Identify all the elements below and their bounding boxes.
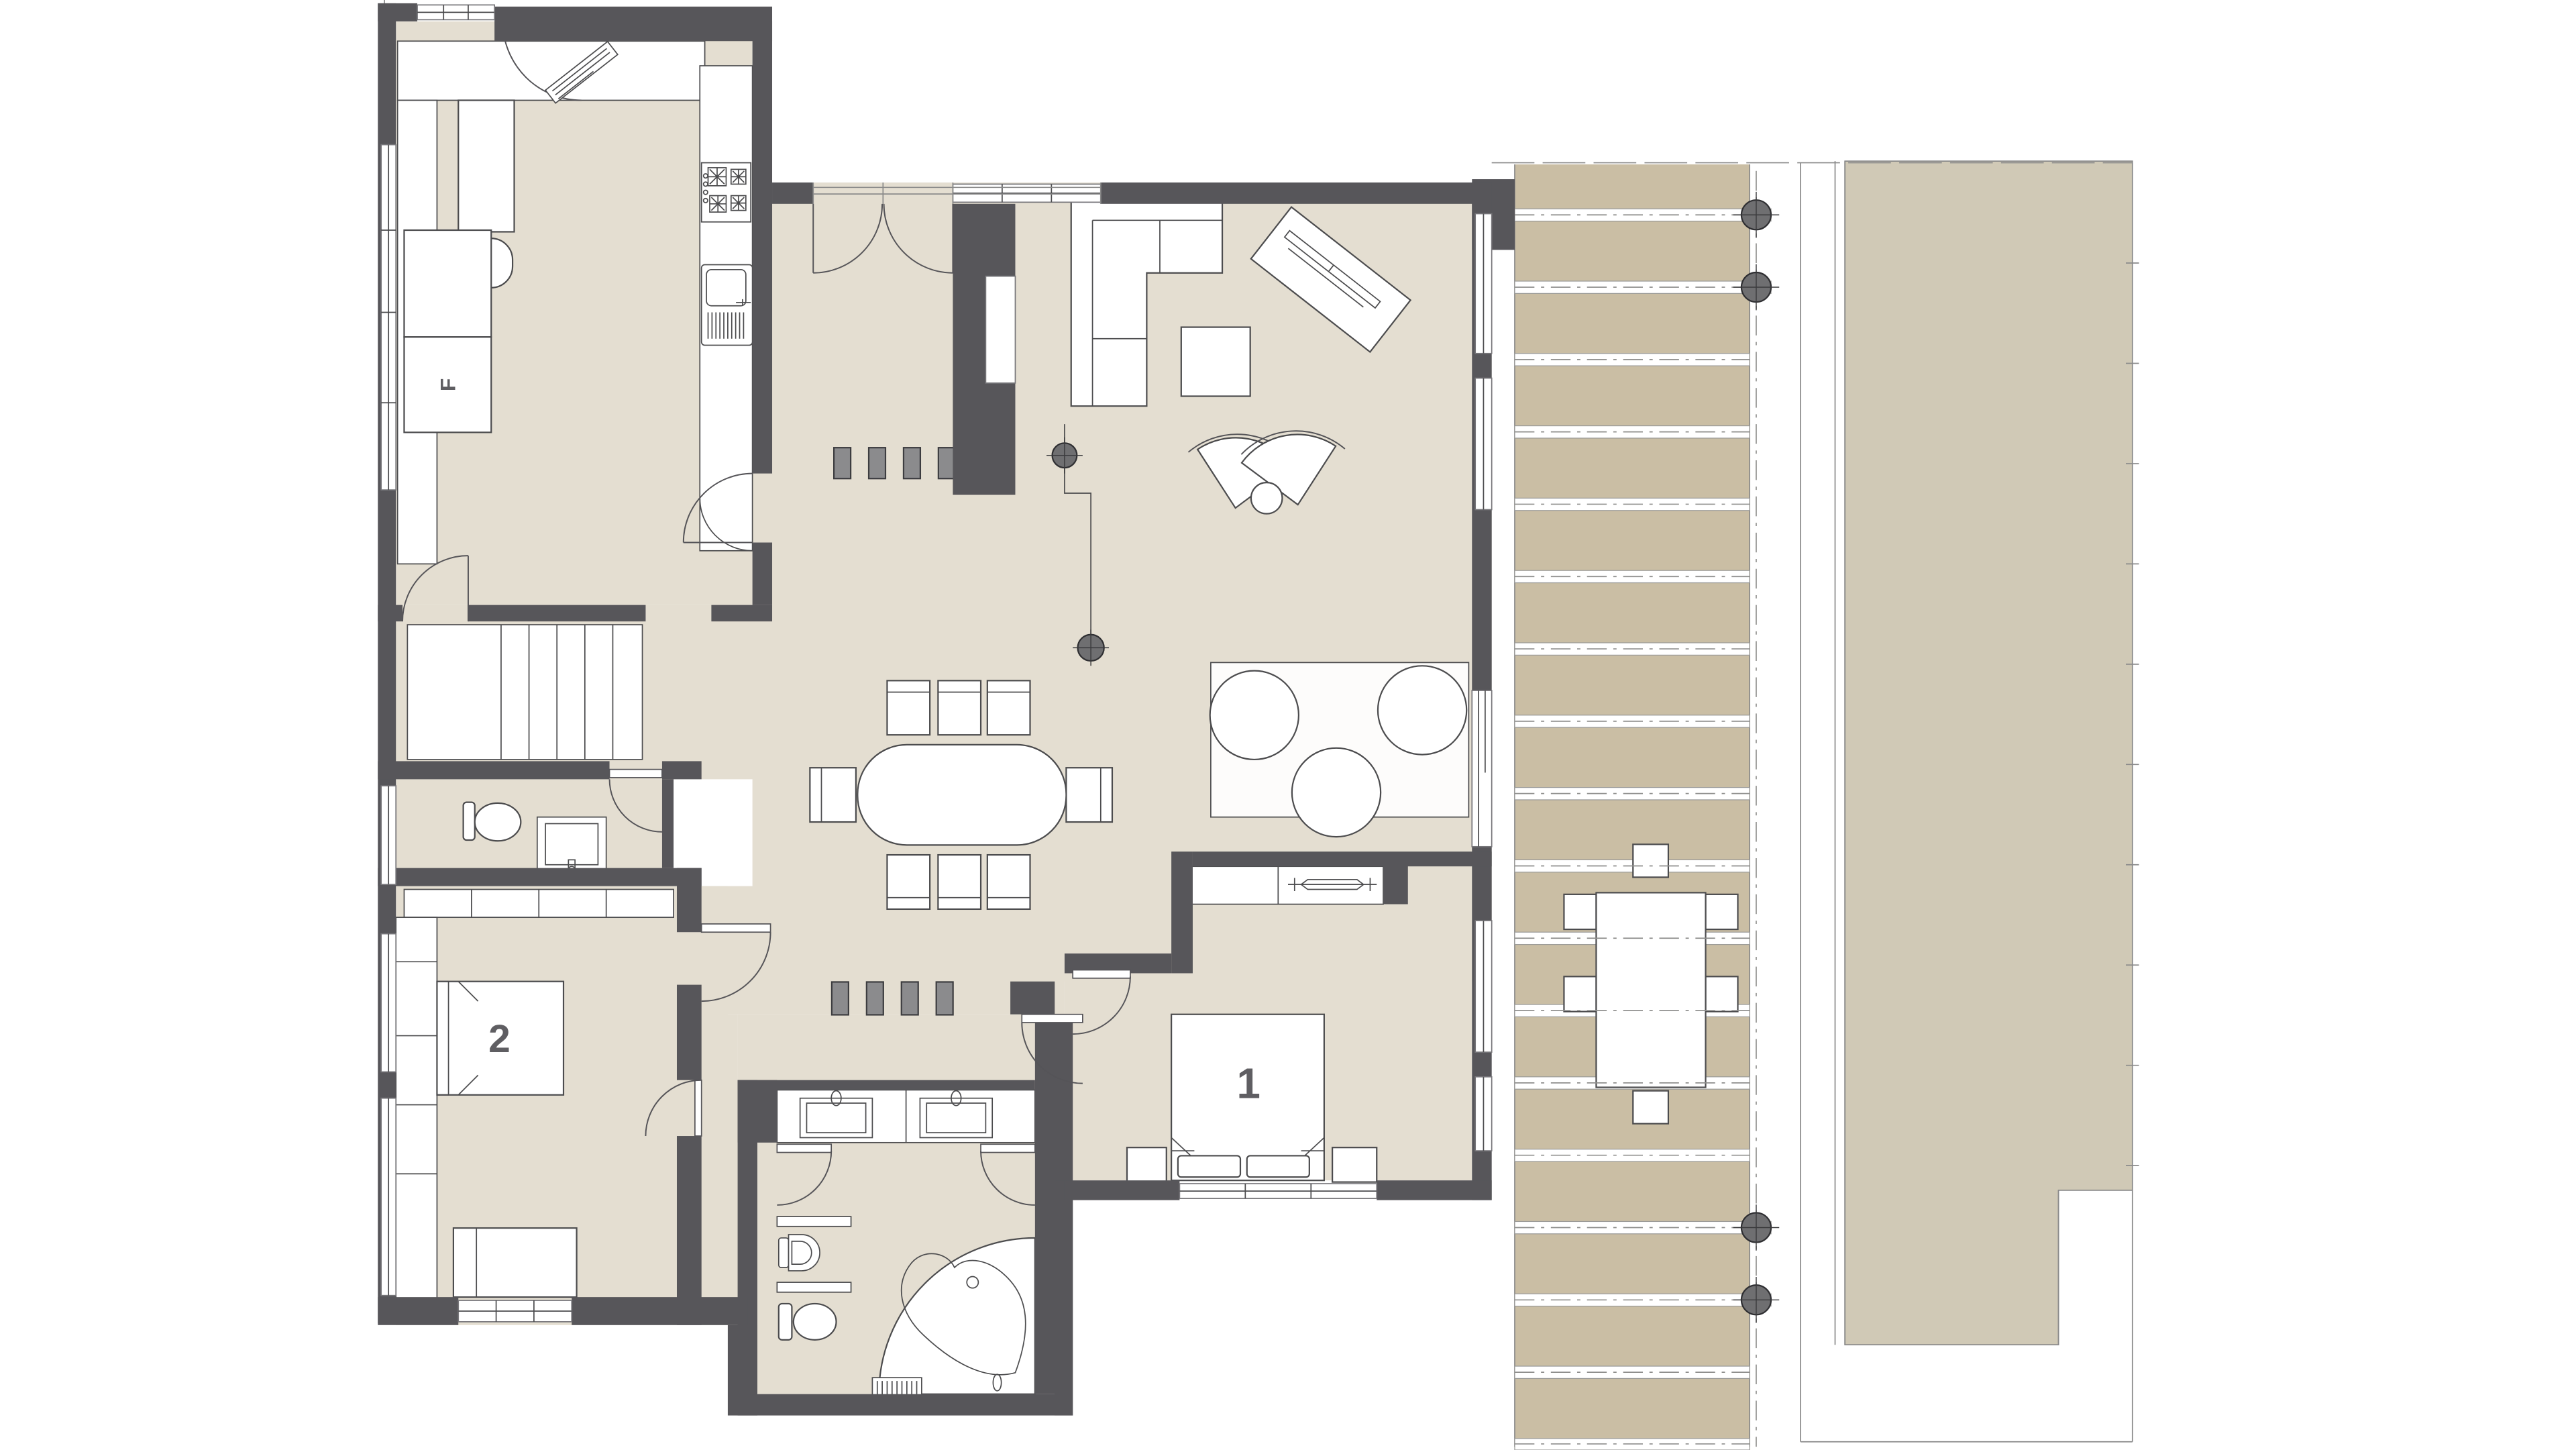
door-leaf: [702, 924, 771, 932]
nightstand: [1127, 1147, 1167, 1182]
wardrobe: [1183, 866, 1383, 904]
wall-segment: [1377, 1180, 1491, 1200]
toilet-icon: [464, 802, 521, 841]
divider-block: [834, 448, 851, 478]
wall-niche: [985, 276, 1015, 383]
pouf: [1292, 748, 1381, 837]
door-leaf: [777, 1144, 831, 1152]
outdoor-table: [1596, 892, 1705, 1087]
dining-chair: [938, 680, 981, 735]
closet-column: [396, 917, 437, 1315]
wall-segment: [1193, 851, 1492, 866]
pouf: [1210, 671, 1299, 760]
outdoor-chair: [1564, 976, 1596, 1011]
wall-segment: [572, 1297, 747, 1325]
sunroom: [1210, 662, 1469, 837]
wall-segment: [662, 761, 702, 779]
shelf: [777, 1216, 851, 1227]
sliding-door: [1472, 690, 1491, 847]
door-leaf: [981, 1144, 1035, 1152]
door-leaf: [1073, 970, 1130, 978]
dining-chair: [887, 855, 930, 909]
dining-chair: [987, 855, 1030, 909]
wall-segment: [738, 1394, 1073, 1416]
divider-block: [869, 448, 885, 478]
fridge-label: F: [435, 378, 460, 391]
bedroom1-label: 1: [1237, 1060, 1260, 1108]
wall-segment: [378, 868, 701, 886]
wall-segment: [1010, 982, 1055, 1015]
wall-segment: [772, 183, 813, 204]
bath-vestibule-floor: [702, 1015, 738, 1325]
toilet-icon: [779, 1304, 837, 1340]
wall-segment: [1101, 183, 1492, 204]
pillow: [1247, 1155, 1309, 1177]
stove-icon: [702, 163, 751, 222]
outdoor-chair: [1633, 844, 1668, 877]
wall-segment: [378, 761, 609, 779]
wall-segment: [753, 543, 772, 605]
coffee-table: [1181, 327, 1250, 397]
kitchen-island-desk: [458, 100, 514, 231]
wall-segment: [378, 605, 402, 622]
floor-plan: F: [0, 0, 2576, 1450]
divider-block: [867, 982, 883, 1015]
outdoor-chair: [1706, 976, 1738, 1011]
kitchen-sink-icon: [702, 264, 753, 345]
wall-segment: [1055, 1180, 1073, 1415]
bedroom2-label: 2: [488, 1017, 511, 1061]
wall-segment: [1065, 1180, 1179, 1200]
door-leaf: [610, 770, 662, 778]
stair-flight: [407, 625, 642, 760]
dining-chair: [987, 680, 1030, 735]
wall-segment: [677, 1136, 702, 1325]
dining-chair: [887, 680, 930, 735]
side-table: [1251, 482, 1283, 514]
divider-block: [904, 448, 920, 478]
divider-block: [902, 982, 918, 1015]
wall-segment: [738, 1080, 1035, 1090]
deck-pergola: [1475, 164, 1771, 1450]
outdoor-chair: [1706, 894, 1738, 929]
shelf: [777, 1282, 851, 1292]
dining-chair: [1066, 768, 1112, 822]
nightstand: [1332, 1147, 1377, 1182]
kitchen-cabinet: [404, 230, 491, 337]
pouf: [1378, 666, 1466, 754]
divider-block: [936, 982, 953, 1015]
dining-table: [857, 745, 1066, 845]
lawn: [1845, 161, 2133, 1345]
door-leaf: [1022, 1015, 1083, 1023]
dining-chair: [810, 768, 856, 822]
wall-segment: [494, 7, 772, 41]
divider-block: [832, 982, 849, 1015]
wall-segment: [662, 779, 674, 868]
wall-segment: [753, 21, 772, 474]
outdoor-chair: [1564, 894, 1596, 929]
door-leaf: [695, 1080, 702, 1136]
wall-segment: [378, 1297, 458, 1325]
bidet-icon: [779, 1235, 820, 1271]
divider-block: [938, 448, 955, 478]
wall-segment: [1171, 851, 1193, 973]
staircase: [407, 625, 642, 760]
wall-segment: [1383, 858, 1408, 904]
bench: [453, 1228, 577, 1297]
wall-segment: [468, 605, 645, 622]
wall-segment: [711, 605, 772, 622]
wall-segment: [677, 985, 702, 1080]
sink-icon: [537, 817, 606, 873]
wall-segment: [728, 1325, 757, 1416]
dining-chair: [938, 855, 981, 909]
pillow: [1178, 1155, 1240, 1177]
outdoor-chair: [1633, 1091, 1668, 1124]
